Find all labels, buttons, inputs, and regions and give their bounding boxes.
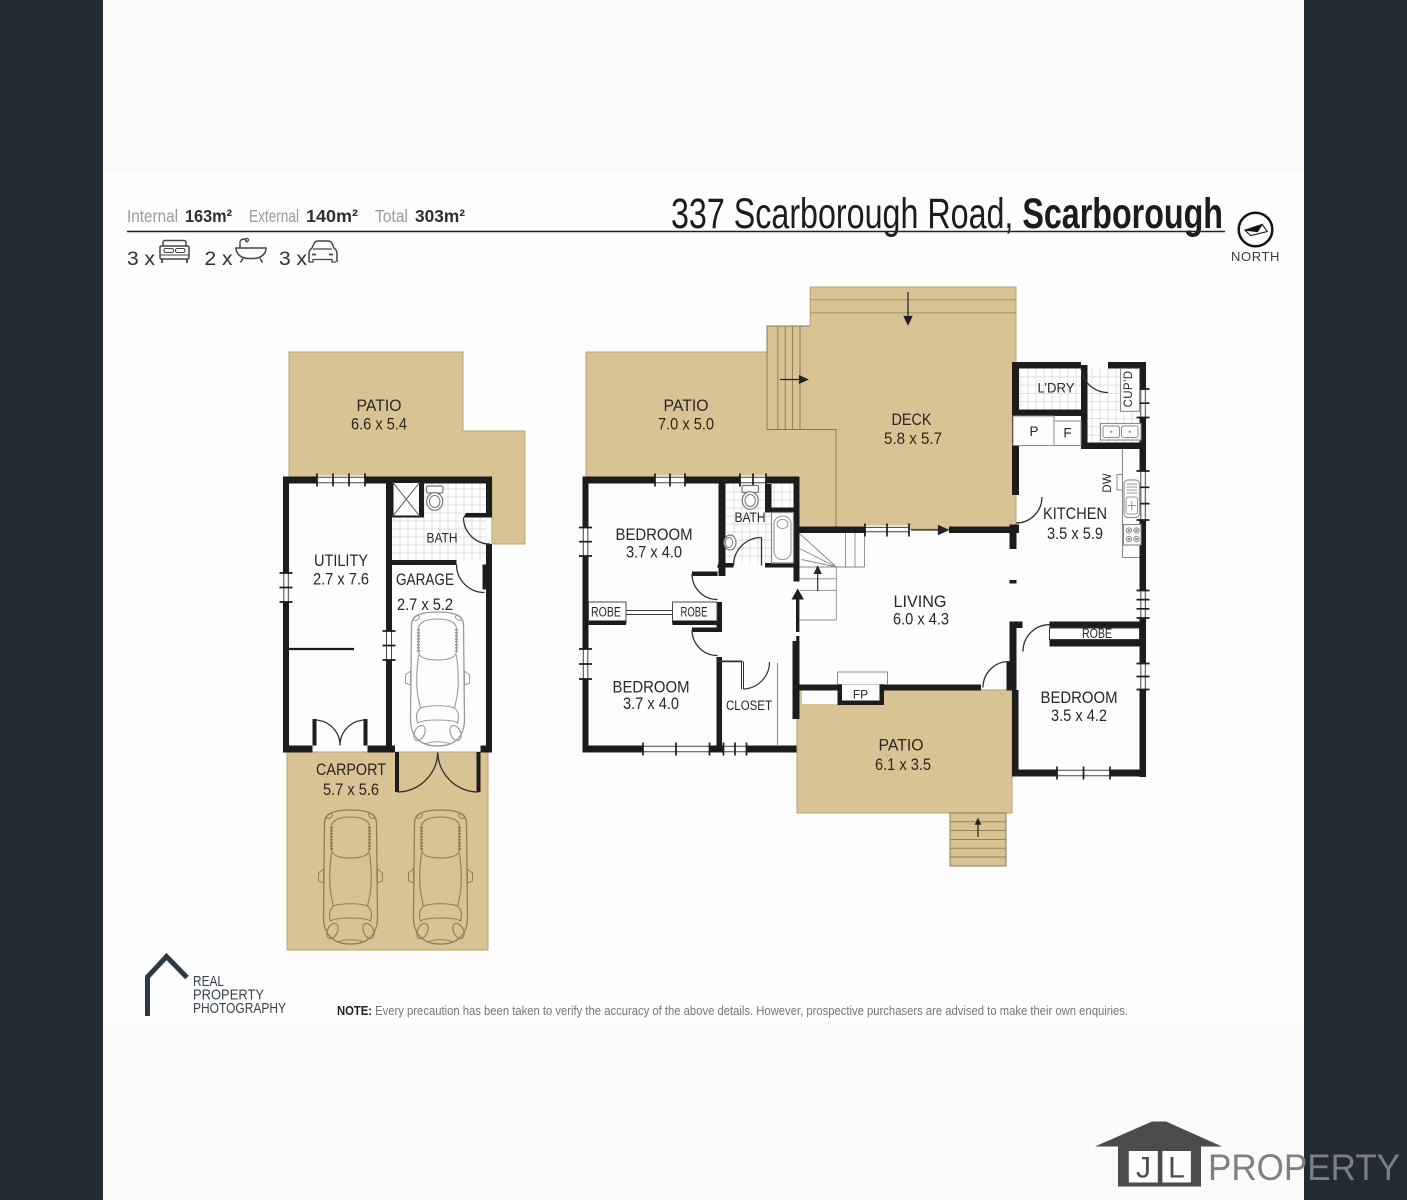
svg-text:L’DRY: L’DRY xyxy=(1038,381,1075,396)
svg-text:DW: DW xyxy=(1102,473,1114,492)
svg-text:163m²: 163m² xyxy=(185,206,232,226)
svg-text:6.1 x 3.5: 6.1 x 3.5 xyxy=(875,755,931,774)
svg-text:J: J xyxy=(1136,1152,1151,1185)
svg-text:ROBE: ROBE xyxy=(1082,626,1112,641)
svg-text:CARPORT: CARPORT xyxy=(316,760,386,779)
svg-text:2.7 x 5.2: 2.7 x 5.2 xyxy=(397,595,453,614)
svg-text:NOTE: Every precaution has bee: NOTE: Every precaution has been taken to… xyxy=(337,1003,1128,1018)
svg-text:F: F xyxy=(1063,426,1071,441)
svg-text:5.8 x 5.7: 5.8 x 5.7 xyxy=(884,429,942,448)
svg-text:Total: Total xyxy=(375,206,408,226)
svg-text:BATH: BATH xyxy=(427,531,458,546)
svg-text:External: External xyxy=(249,206,299,226)
svg-text:3.7 x 4.0: 3.7 x 4.0 xyxy=(623,694,679,713)
svg-text:3 x: 3 x xyxy=(127,248,155,270)
svg-text:3.5 x 5.9: 3.5 x 5.9 xyxy=(1047,524,1103,543)
svg-text:6.6 x 5.4: 6.6 x 5.4 xyxy=(351,415,407,434)
svg-text:3.5 x 4.2: 3.5 x 4.2 xyxy=(1051,706,1107,725)
svg-text:PHOTOGRAPHY: PHOTOGRAPHY xyxy=(193,1000,286,1017)
svg-text:DECK: DECK xyxy=(892,410,933,429)
svg-text:3.7 x 4.0: 3.7 x 4.0 xyxy=(626,543,682,562)
svg-text:BEDROOM: BEDROOM xyxy=(616,525,693,544)
svg-text:FP: FP xyxy=(853,688,868,702)
svg-text:PROPERTY: PROPERTY xyxy=(1208,1146,1400,1188)
svg-text:L: L xyxy=(1168,1152,1185,1185)
svg-text:3 x: 3 x xyxy=(279,248,307,270)
svg-text:2 x: 2 x xyxy=(205,248,233,270)
svg-text:ROBE: ROBE xyxy=(591,605,621,620)
svg-text:GARAGE: GARAGE xyxy=(396,570,454,589)
svg-text:PATIO: PATIO xyxy=(664,396,709,415)
svg-text:CLOSET: CLOSET xyxy=(726,698,772,713)
svg-text:6.0 x 4.3: 6.0 x 4.3 xyxy=(893,610,949,629)
svg-text:P: P xyxy=(1029,424,1038,439)
svg-text:PATIO: PATIO xyxy=(879,736,924,755)
svg-text:140m²: 140m² xyxy=(306,206,358,226)
svg-text:BEDROOM: BEDROOM xyxy=(1041,688,1118,707)
svg-text:BATH: BATH xyxy=(735,510,766,525)
svg-text:KITCHEN: KITCHEN xyxy=(1043,504,1107,523)
svg-text:UTILITY: UTILITY xyxy=(314,551,368,570)
svg-text:7.0 x 5.0: 7.0 x 5.0 xyxy=(658,415,714,434)
svg-text:2.7 x 7.6: 2.7 x 7.6 xyxy=(313,570,369,589)
svg-text:PATIO: PATIO xyxy=(357,396,402,415)
svg-text:CUP’D: CUP’D xyxy=(1123,371,1135,408)
svg-text:ROBE: ROBE xyxy=(681,605,708,620)
svg-text:NORTH: NORTH xyxy=(1231,249,1280,264)
svg-text:LIVING: LIVING xyxy=(894,592,947,611)
svg-text:303m²: 303m² xyxy=(415,206,465,226)
svg-text:Internal: Internal xyxy=(127,206,178,226)
svg-text:5.7 x 5.6: 5.7 x 5.6 xyxy=(323,780,379,799)
